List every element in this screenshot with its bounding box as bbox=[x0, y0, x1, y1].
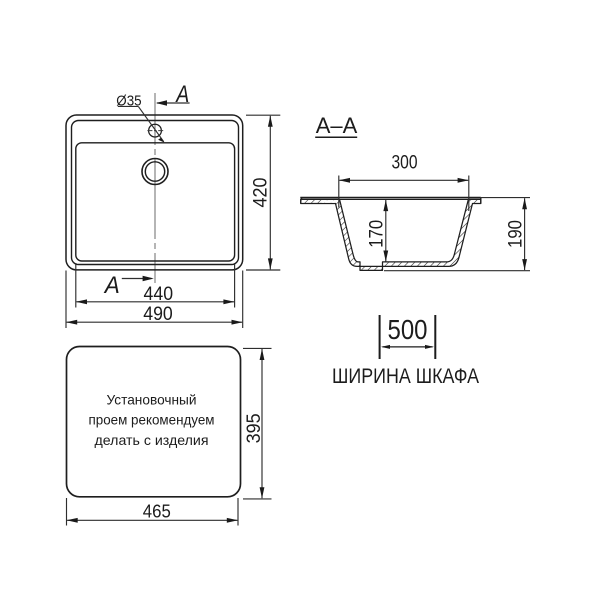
svg-text:делать с изделия: делать с изделия bbox=[95, 432, 209, 448]
svg-text:Установочный: Установочный bbox=[107, 392, 197, 408]
svg-text:490: 490 bbox=[143, 304, 173, 325]
svg-text:Ø35: Ø35 bbox=[116, 93, 141, 110]
svg-text:440: 440 bbox=[144, 284, 174, 305]
svg-text:190: 190 bbox=[506, 220, 527, 248]
svg-text:A: A bbox=[175, 81, 190, 108]
svg-text:A: A bbox=[103, 272, 120, 299]
svg-text:ШИРИНА ШКАФА: ШИРИНА ШКАФА bbox=[332, 364, 480, 388]
svg-text:300: 300 bbox=[392, 152, 418, 173]
svg-text:420: 420 bbox=[250, 178, 271, 208]
svg-text:A–A: A–A bbox=[316, 113, 358, 138]
svg-text:465: 465 bbox=[143, 501, 171, 521]
svg-text:500: 500 bbox=[388, 314, 428, 345]
svg-text:170: 170 bbox=[367, 220, 388, 248]
svg-text:проем рекомендуем: проем рекомендуем bbox=[89, 412, 215, 428]
svg-text:395: 395 bbox=[244, 413, 265, 443]
